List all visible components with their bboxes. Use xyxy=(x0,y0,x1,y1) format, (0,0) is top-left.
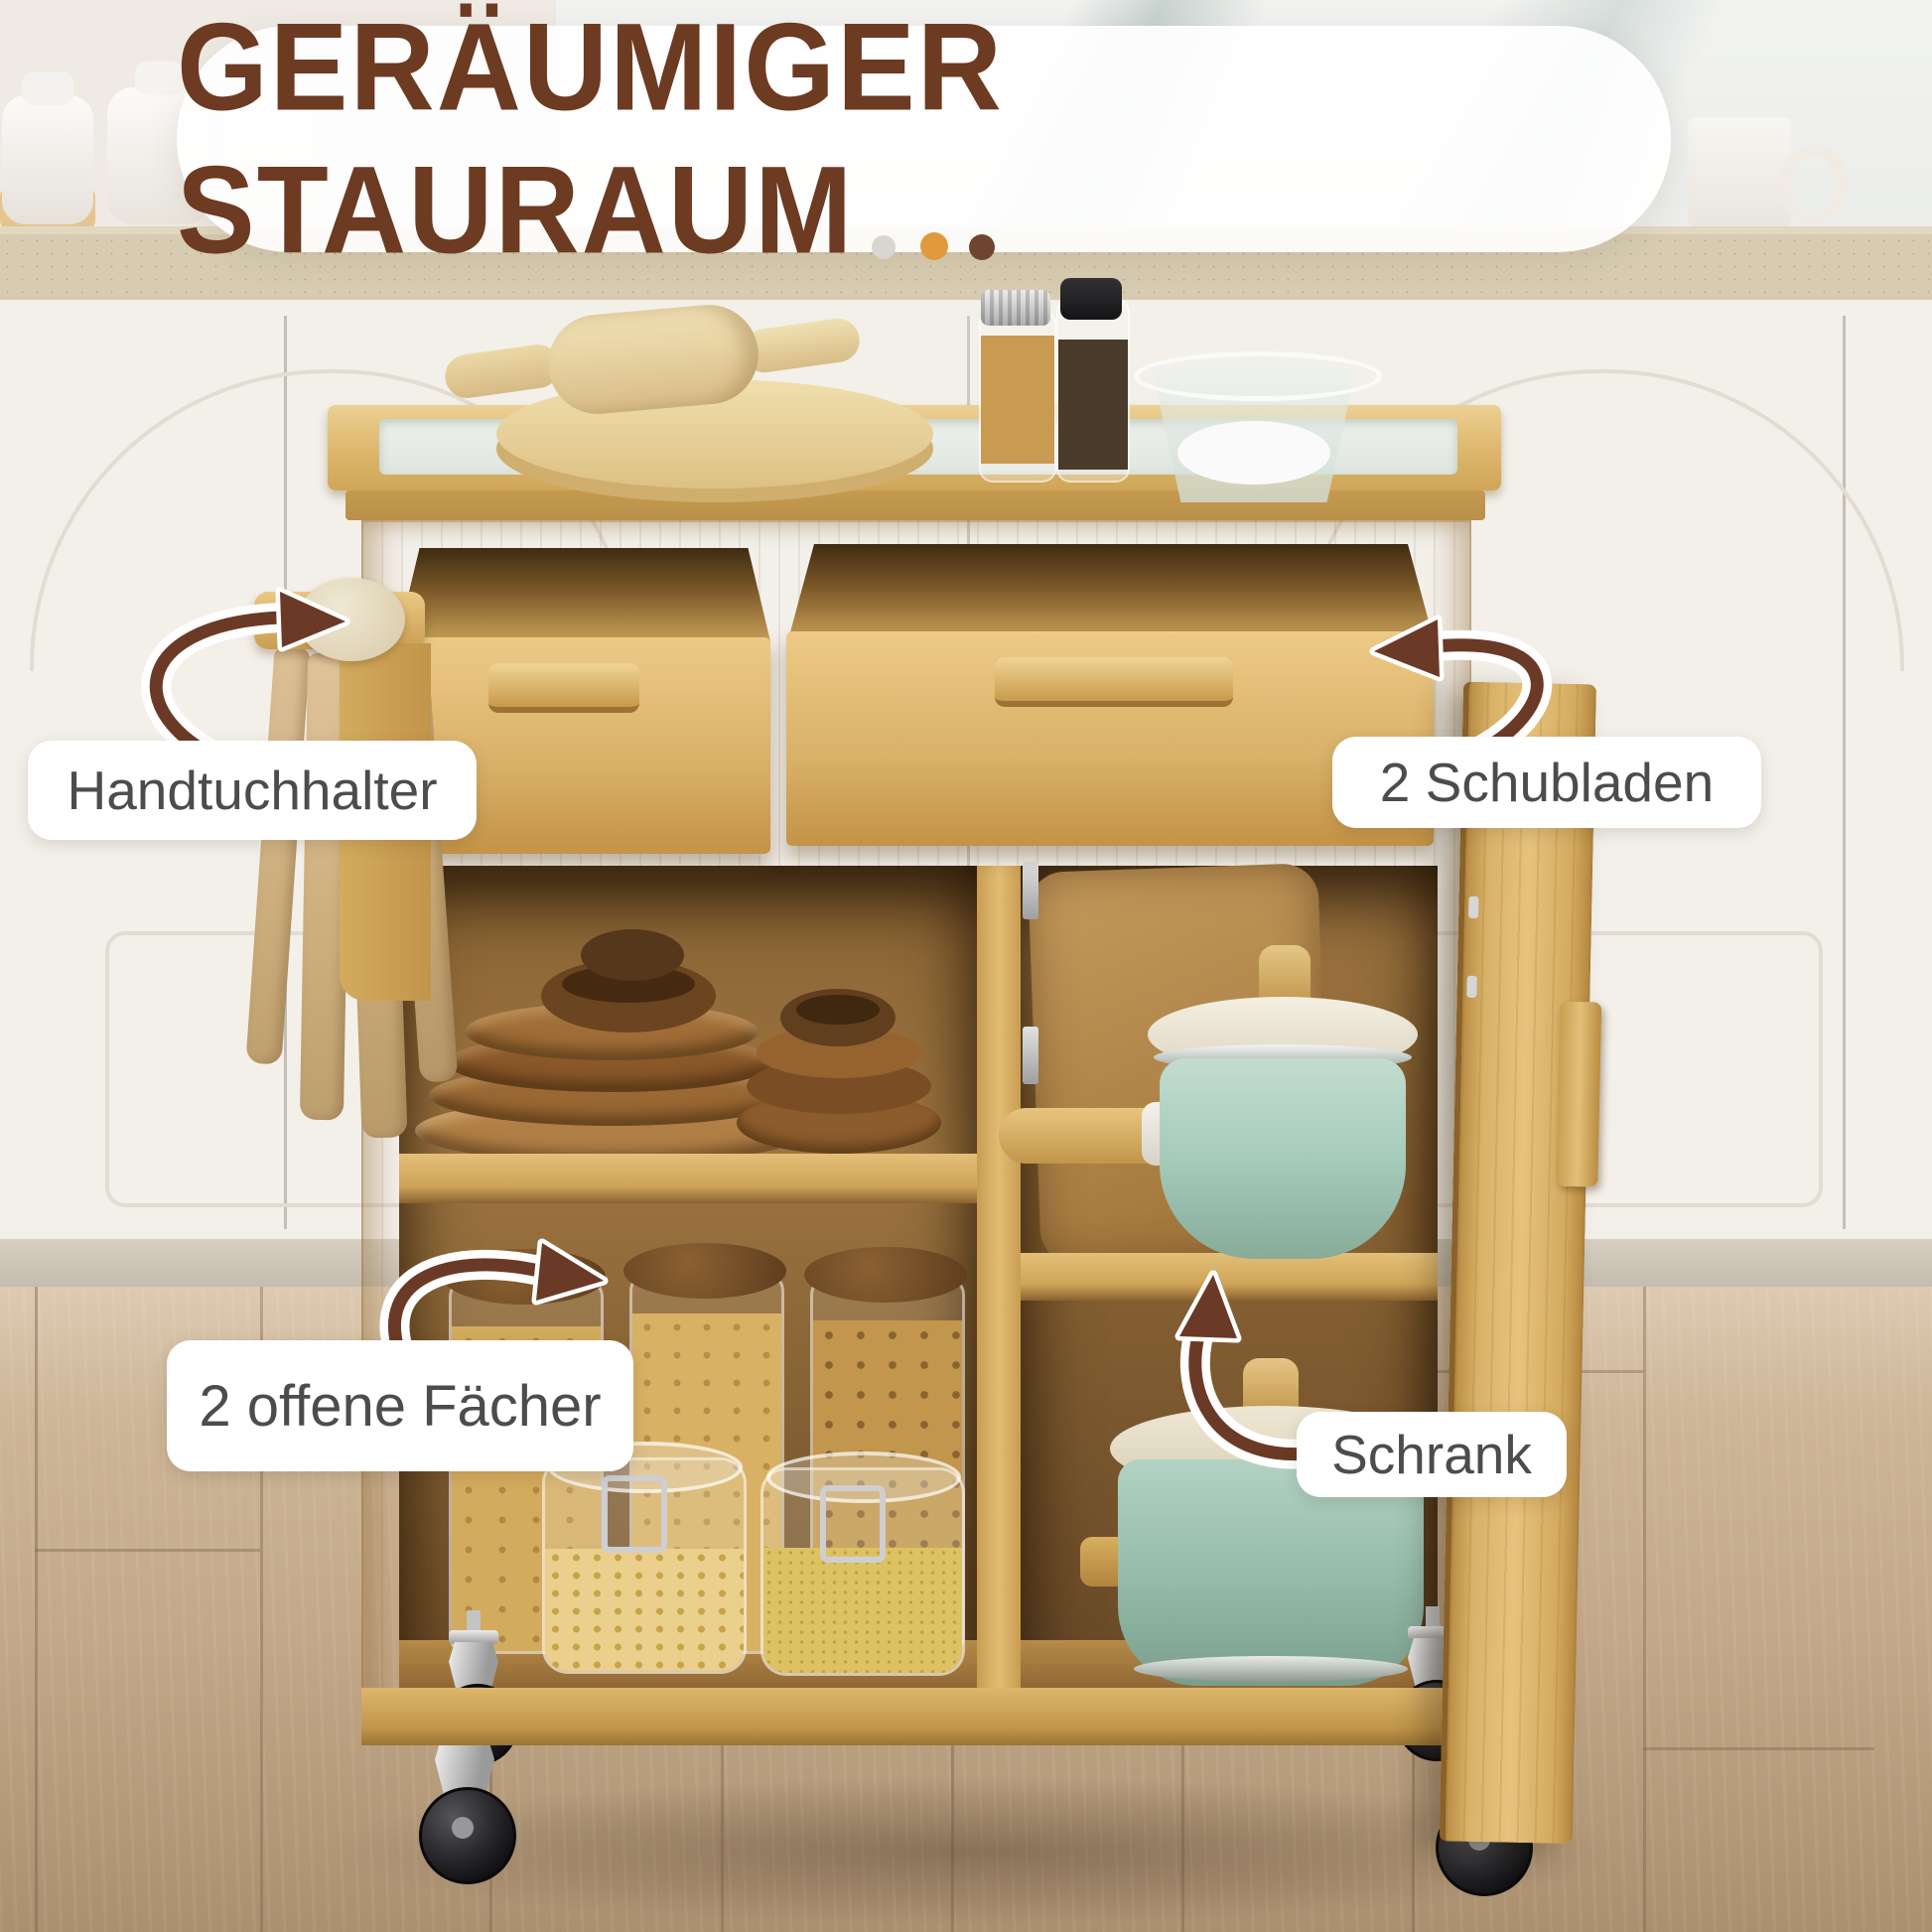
callout-towel-holder: Handtuchhalter xyxy=(28,741,477,840)
decor-dot-brown xyxy=(969,234,995,260)
callout-arrows xyxy=(0,0,1932,1932)
callout-cabinet: Schrank xyxy=(1297,1412,1567,1497)
callout-open-shelves-label: 2 offene Fächer xyxy=(199,1373,601,1440)
decor-dot-gray xyxy=(872,235,896,259)
arrowhead-towel xyxy=(280,592,345,647)
callout-cabinet-label: Schrank xyxy=(1331,1423,1532,1486)
arrowhead-drawer xyxy=(1374,620,1440,677)
callout-drawers: 2 Schubladen xyxy=(1332,737,1761,828)
headline-banner: GERÄUMIGER STAURAUM xyxy=(177,26,1671,252)
arrowhead-shelves xyxy=(536,1243,604,1301)
callout-towel-holder-label: Handtuchhalter xyxy=(67,759,437,822)
annotated-product-photo: GERÄUMIGER STAURAUM Handtuchhalter 2 Sch… xyxy=(0,0,1932,1932)
callout-open-shelves: 2 offene Fächer xyxy=(167,1340,633,1471)
callout-drawers-label: 2 Schubladen xyxy=(1380,751,1714,814)
arrowhead-cabinet xyxy=(1179,1275,1237,1338)
decor-dot-orange xyxy=(920,232,948,260)
